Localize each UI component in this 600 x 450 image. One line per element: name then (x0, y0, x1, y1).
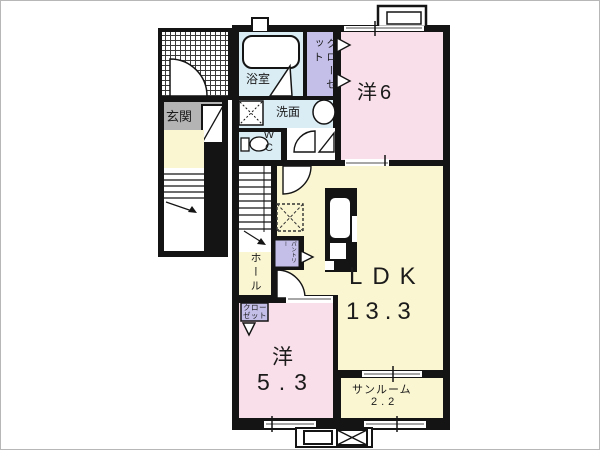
vent-box (252, 18, 268, 32)
floor-plan: 玄関 浴室 クローゼット 洗面 WC 洋6 ホール パントリー クロー ゼット … (0, 0, 600, 450)
label-washroom: 洗面 (276, 103, 300, 120)
label-room53-size: 5.3 (257, 369, 316, 396)
stairs-2f-area (239, 166, 271, 252)
entrance-hall-floor (164, 130, 204, 168)
label-genkan: 玄関 (166, 106, 192, 125)
bathtub (243, 36, 299, 68)
kitchen-notch (325, 261, 334, 270)
washing-machine-space (239, 101, 263, 125)
label-ldk: LDK (349, 263, 426, 291)
label-closet-bottom: クロー ゼット (243, 304, 267, 320)
label-sunroom: サンルーム (352, 381, 412, 397)
label-sunroom-size: 2.2 (371, 396, 398, 408)
label-closet-top: クローゼット (307, 38, 337, 96)
kitchen-opening (352, 216, 357, 242)
deck-box (304, 431, 332, 444)
kitchen-sink (330, 198, 350, 238)
toilet-tank (241, 138, 249, 151)
kitchen-stove (330, 243, 346, 259)
label-ldk-size: 13.3 (346, 298, 417, 326)
bottom-deck (296, 428, 372, 447)
label-pantry: パントリー (281, 241, 297, 265)
label-room53: 洋 (272, 341, 293, 371)
bay-window-inner (387, 12, 421, 24)
wash-basin (313, 100, 335, 124)
entrance-structure (158, 30, 230, 257)
label-bathroom: 浴室 (246, 70, 270, 87)
wall-tick (206, 147, 221, 153)
label-room6: 洋6 (357, 76, 394, 105)
label-wc: WC (263, 129, 275, 161)
label-hall: ホール (247, 252, 263, 298)
